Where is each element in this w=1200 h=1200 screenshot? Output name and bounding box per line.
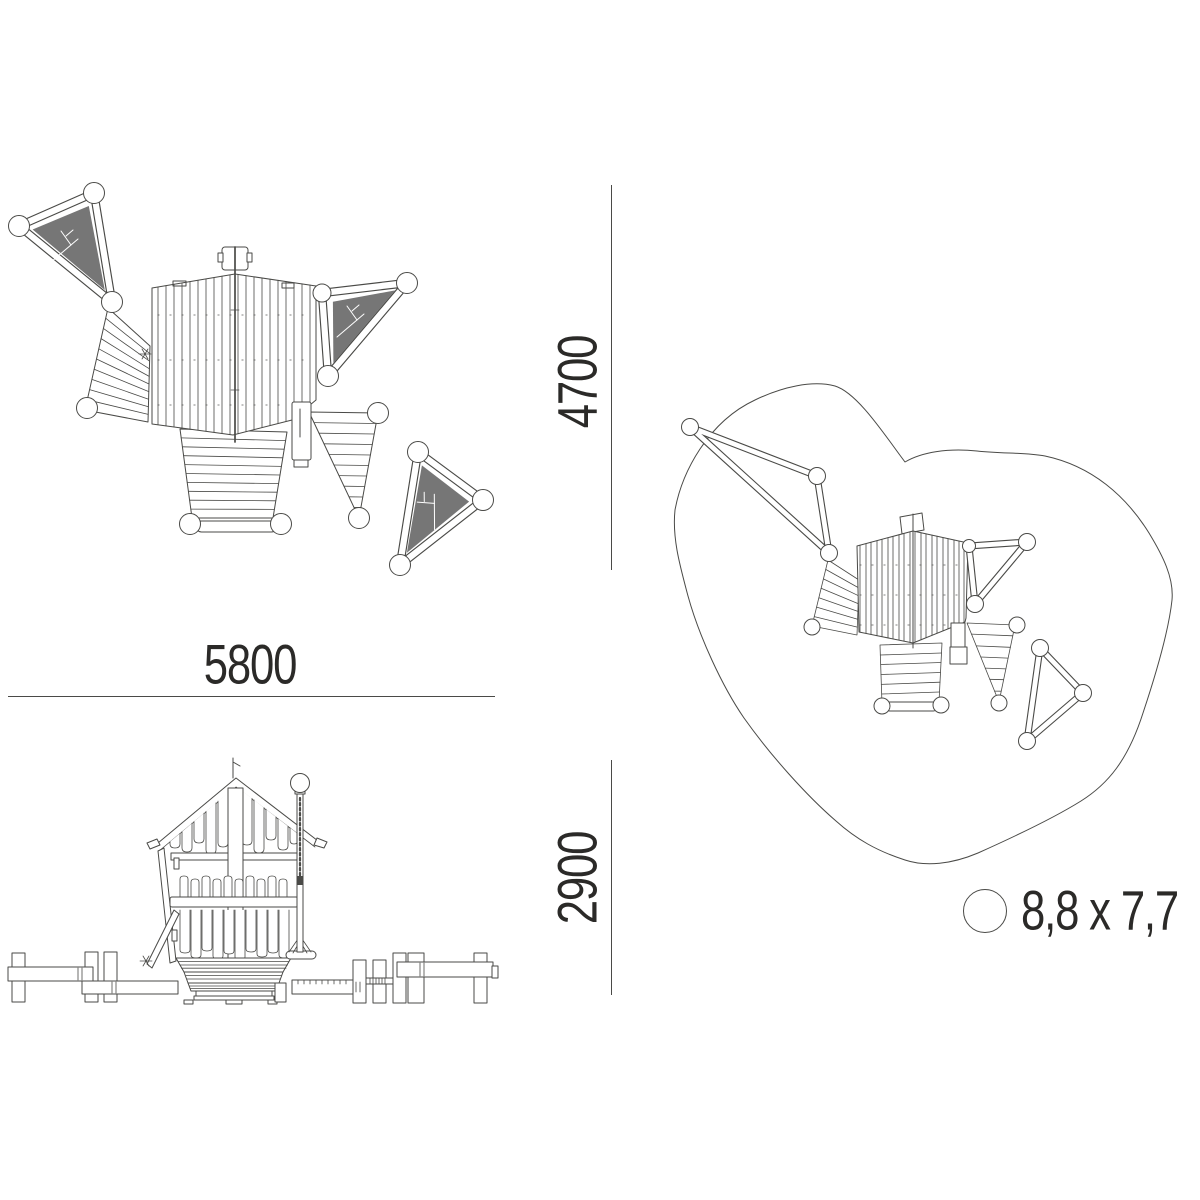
plan-sail-net-right xyxy=(313,273,418,387)
playground-technical-drawing-sheet: 5800 4700 2900 xyxy=(0,0,1200,1200)
plan-view-drawing xyxy=(0,150,520,620)
safety-net-frame-top-left xyxy=(682,419,838,562)
elevation-view-drawing xyxy=(0,740,520,1030)
space-requirement-value: 8,8 x 7,7 xyxy=(1021,878,1178,943)
plan-sail-net-top-left xyxy=(9,183,123,313)
plan-stairs xyxy=(180,429,292,535)
space-requirement-circle-icon xyxy=(963,889,1007,933)
safety-access-ramp xyxy=(804,560,859,635)
plan-sail-net-bottom-right xyxy=(390,442,494,576)
elevation-height-dimension-label: 2900 xyxy=(545,832,610,924)
plan-access-ramp xyxy=(77,308,152,422)
elevation-hull-base xyxy=(176,958,291,1004)
safety-net-frame-right xyxy=(963,534,1036,613)
safety-structure xyxy=(682,419,1092,750)
elevation-firemans-pole xyxy=(286,774,316,960)
plan-climbing-ramp xyxy=(309,403,389,529)
plan-main-roof xyxy=(152,247,316,442)
plan-depth-dimension-label: 4700 xyxy=(545,336,610,428)
elevation-balance-beams-right xyxy=(275,953,498,1003)
plan-width-dimension-label: 5800 xyxy=(204,632,296,697)
elevation-height-dimension-line xyxy=(611,760,612,995)
plan-slide-pole xyxy=(292,402,311,467)
safety-slide-pole xyxy=(950,623,967,664)
safety-climbing-ramp xyxy=(967,617,1025,711)
plan-depth-dimension-line xyxy=(611,185,612,570)
safety-stairs xyxy=(874,643,949,714)
safety-net-frame-bottom-right xyxy=(1019,640,1092,750)
safety-area-drawing xyxy=(660,380,1200,870)
